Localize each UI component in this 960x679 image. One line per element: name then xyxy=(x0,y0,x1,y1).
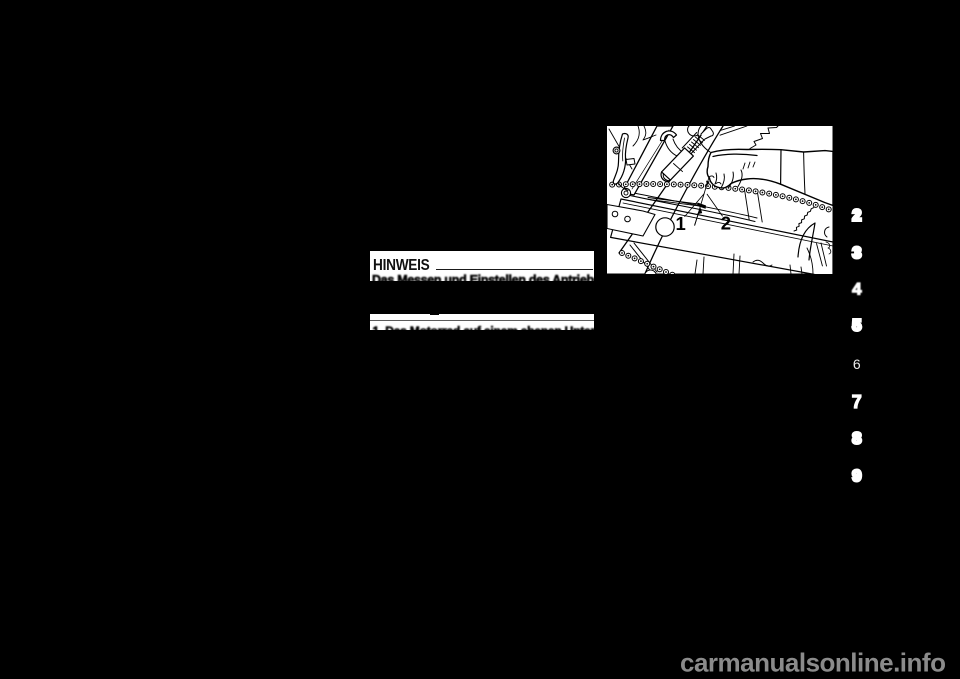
svg-text:5: 5 xyxy=(852,318,861,335)
svg-text:3: 3 xyxy=(852,245,861,262)
svg-text:7: 7 xyxy=(852,392,862,412)
svg-text:9: 9 xyxy=(852,468,861,485)
svg-text:6: 6 xyxy=(853,356,861,372)
svg-text:4: 4 xyxy=(852,280,862,299)
svg-text:8: 8 xyxy=(852,431,861,448)
svg-text:carmanualsonline.info: carmanualsonline.info xyxy=(680,648,945,678)
svg-text:2: 2 xyxy=(852,208,861,225)
